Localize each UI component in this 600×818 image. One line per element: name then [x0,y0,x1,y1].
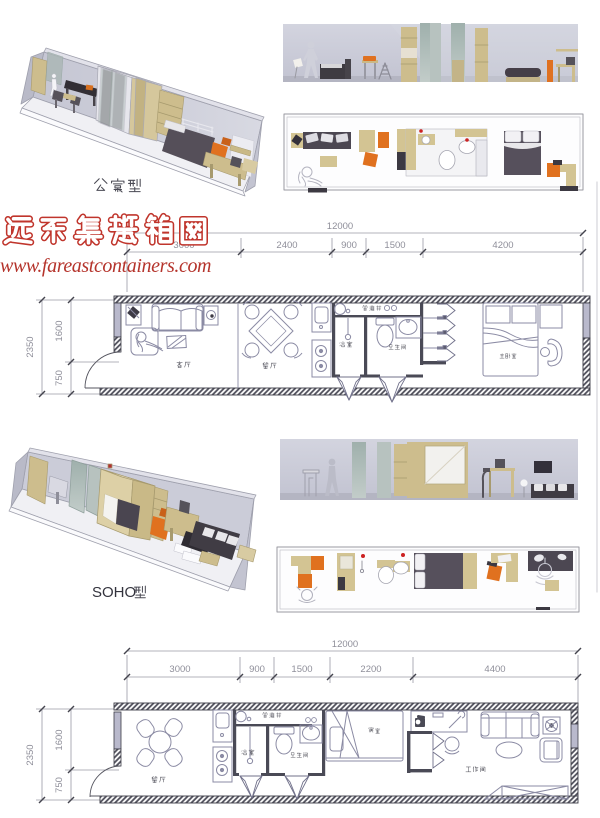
svg-text:2400: 2400 [276,240,297,251]
svg-text:750: 750 [54,777,65,793]
svg-text:www.fareastcontainers.com: www.fareastcontainers.com [0,255,211,277]
svg-text:2200: 2200 [360,664,381,675]
svg-text:12000: 12000 [332,639,358,650]
svg-text:900: 900 [249,664,265,675]
svg-text:1500: 1500 [291,664,312,675]
svg-text:1600: 1600 [54,729,65,750]
svg-text:2350: 2350 [25,744,36,765]
svg-text:12000: 12000 [327,221,353,232]
svg-text:1500: 1500 [384,240,405,251]
svg-text:4400: 4400 [484,664,505,675]
svg-text:2350: 2350 [25,336,36,357]
svg-text:3000: 3000 [169,664,190,675]
svg-text:4200: 4200 [492,240,513,251]
svg-text:750: 750 [54,370,65,386]
svg-text:900: 900 [341,240,357,251]
svg-text:SOHO: SOHO [92,584,136,601]
svg-text:1600: 1600 [54,320,65,341]
